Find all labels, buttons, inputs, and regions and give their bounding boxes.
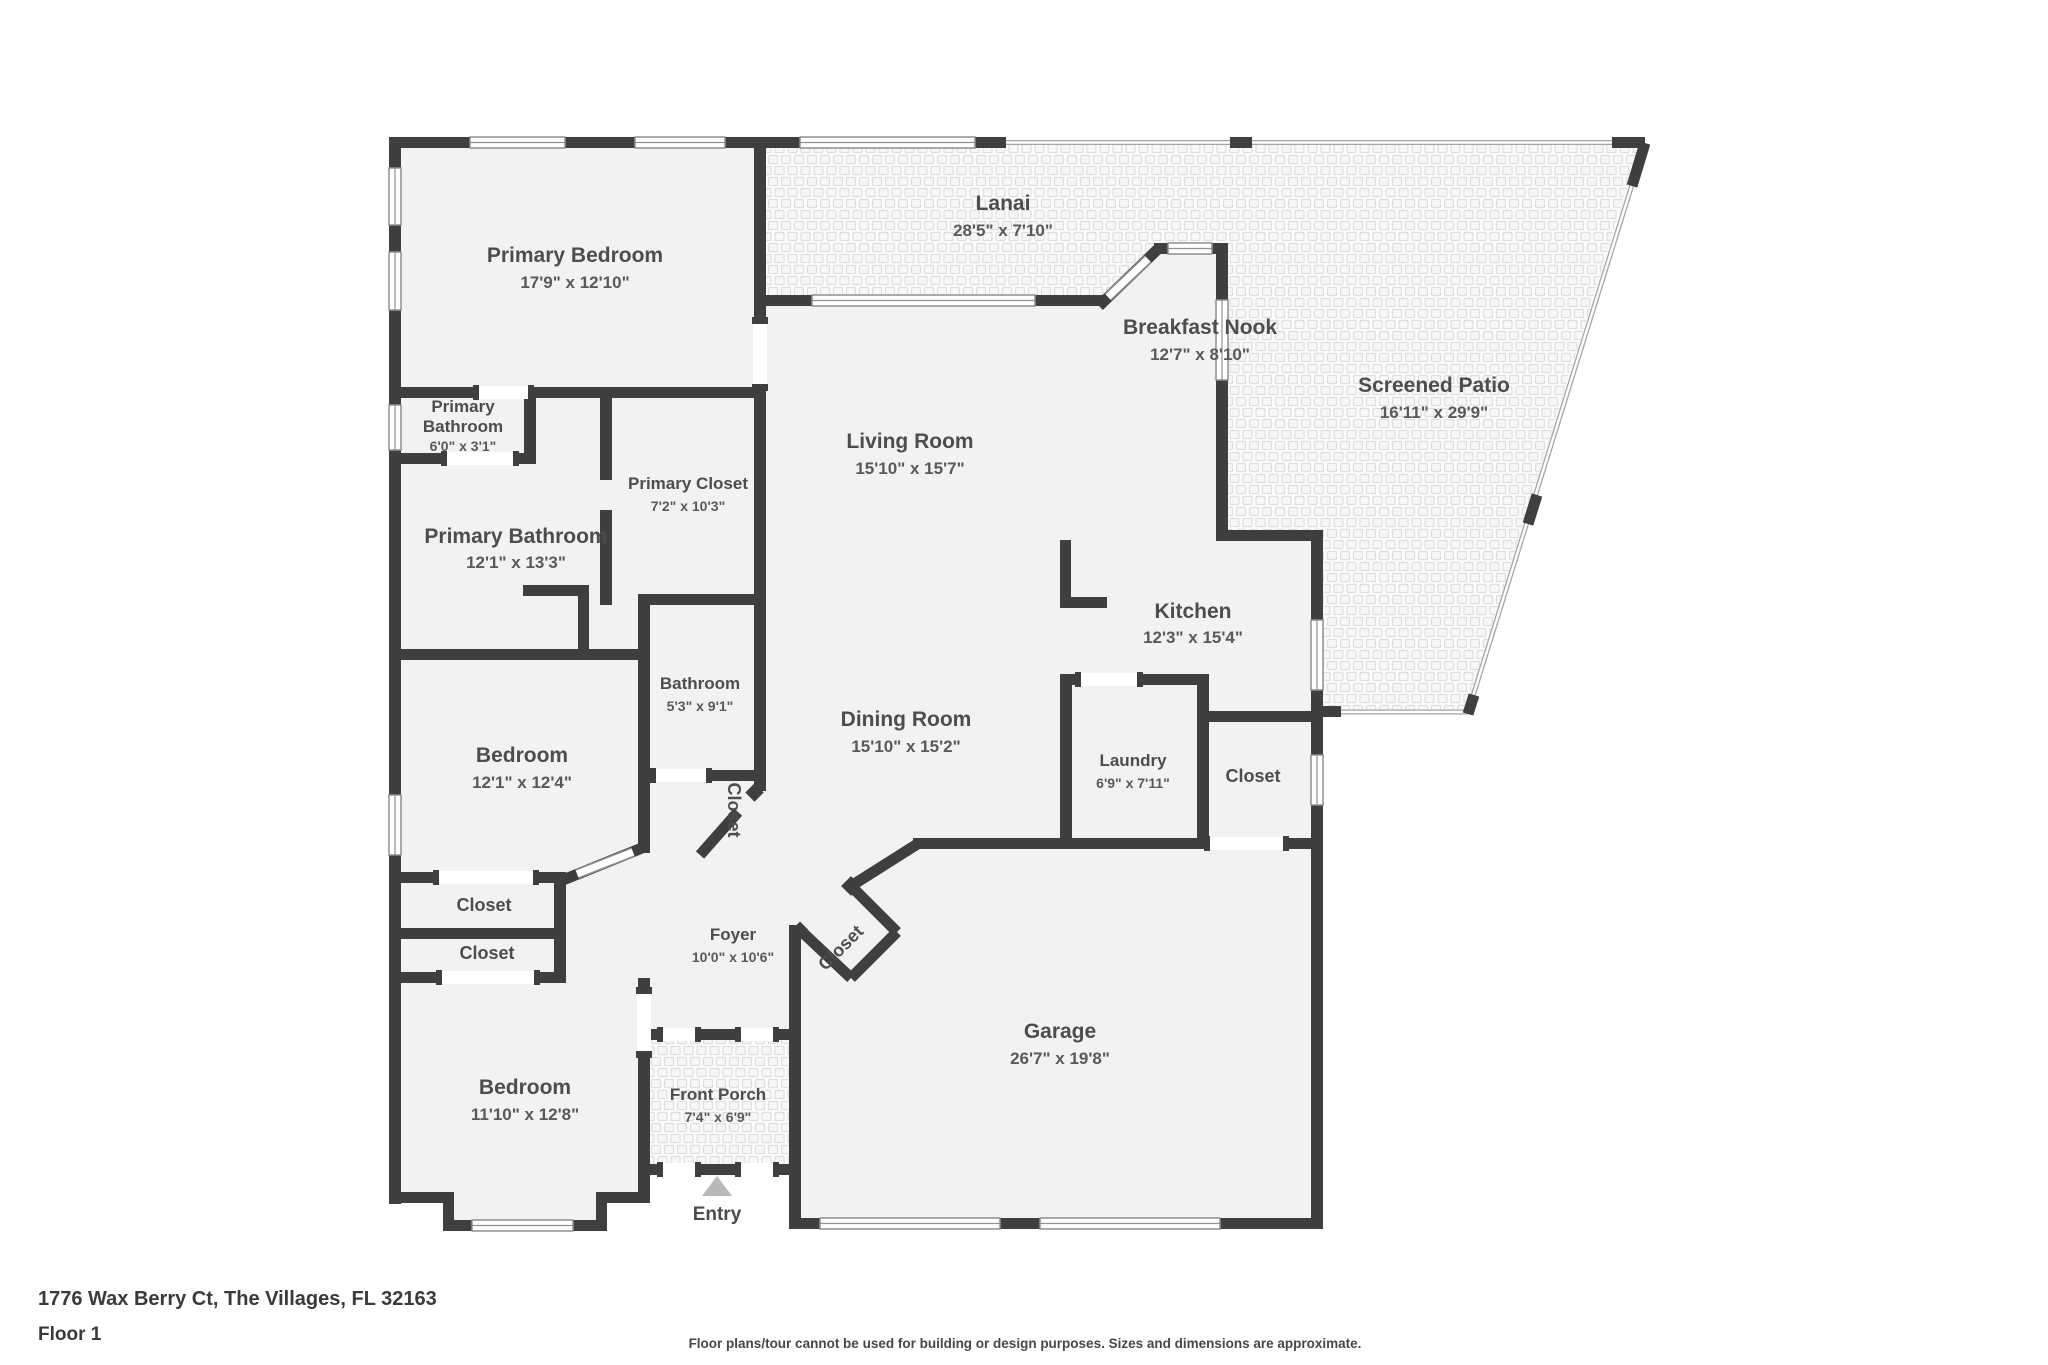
room-dims-primary-closet: 7'2" x 10'3" [651, 498, 725, 514]
room-dims-bedroom-middle: 12'1" x 12'4" [472, 773, 572, 792]
room-label-screened-patio: Screened Patio [1358, 374, 1510, 397]
room-label-bedroom-front: Bedroom [479, 1076, 571, 1099]
entry-arrow [702, 1176, 732, 1196]
floor-plan: Primary Bedroom 17'9" x 12'10" Lanai 28'… [0, 0, 2048, 1365]
floor-label: Floor 1 [38, 1324, 102, 1345]
room-label-front-porch: Front Porch [670, 1085, 766, 1104]
address-text: 1776 Wax Berry Ct, The Villages, FL 3216… [38, 1288, 437, 1310]
entry-label: Entry [693, 1204, 742, 1225]
room-dims-garage: 26'7" x 19'8" [1010, 1049, 1110, 1068]
room-dims-primary-bathroom: 12'1" x 13'3" [466, 553, 566, 572]
room-label-breakfast-nook: Breakfast Nook [1123, 316, 1277, 339]
room-label-lanai: Lanai [976, 192, 1031, 215]
room-label-closet-b: Closet [459, 943, 514, 963]
room-label-bathroom: Bathroom [660, 674, 740, 693]
room-label-primary-closet: Primary Closet [628, 474, 748, 493]
room-dims-kitchen: 12'3" x 15'4" [1143, 628, 1243, 647]
room-label-closet-laundry: Closet [1225, 766, 1280, 786]
room-label-kitchen: Kitchen [1154, 600, 1231, 623]
room-label-primary-bathroom: Primary Bathroom [424, 525, 607, 548]
room-dims-front-porch: 7'4" x 6'9" [685, 1109, 752, 1125]
room-dims-living-room: 15'10" x 15'7" [855, 459, 964, 478]
room-dims-laundry: 6'9" x 7'11" [1096, 775, 1170, 791]
room-dims-dining-room: 15'10" x 15'2" [851, 737, 960, 756]
room-dims-primary-bedroom: 17'9" x 12'10" [520, 273, 629, 292]
room-label-laundry: Laundry [1099, 751, 1167, 770]
room-dims-screened-patio: 16'11" x 29'9" [1380, 403, 1488, 422]
footer: 1776 Wax Berry Ct, The Villages, FL 3216… [38, 1288, 1361, 1351]
room-dims-bathroom: 5'3" x 9'1" [667, 698, 734, 714]
disclaimer-text: Floor plans/tour cannot be used for buil… [689, 1336, 1362, 1351]
room-label-primary-bedroom: Primary Bedroom [487, 244, 663, 267]
room-label-bedroom-middle: Bedroom [476, 744, 568, 767]
room-label-living-room: Living Room [846, 430, 973, 453]
room-label-closet-hall: Closet [724, 782, 744, 837]
room-label-primary-bathroom-small-2: Bathroom [423, 417, 503, 436]
room-label-garage: Garage [1024, 1020, 1096, 1043]
room-label-foyer: Foyer [710, 925, 757, 944]
room-label-closet-a: Closet [456, 895, 511, 915]
room-label-dining-room: Dining Room [841, 708, 972, 731]
room-dims-foyer: 10'0" x 10'6" [692, 949, 774, 965]
room-dims-breakfast-nook: 12'7" x 8'10" [1150, 345, 1250, 364]
floor-plan-page: Primary Bedroom 17'9" x 12'10" Lanai 28'… [0, 0, 2048, 1365]
room-dims-lanai: 28'5" x 7'10" [953, 221, 1053, 240]
room-dims-bedroom-front: 11'10" x 12'8" [471, 1105, 579, 1124]
room-label-primary-bathroom-small-1: Primary [431, 397, 495, 416]
room-dims-primary-bathroom-small: 6'0" x 3'1" [430, 438, 497, 454]
